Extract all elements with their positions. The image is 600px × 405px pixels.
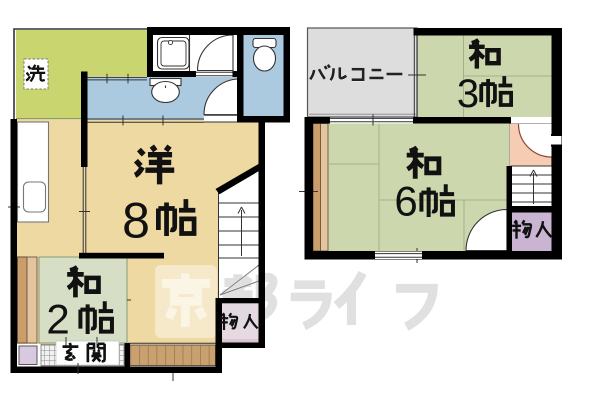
svg-text:3: 3	[457, 72, 479, 116]
svg-text:6: 6	[394, 178, 417, 225]
svg-text:8: 8	[122, 193, 150, 249]
svg-text:2: 2	[46, 296, 69, 343]
